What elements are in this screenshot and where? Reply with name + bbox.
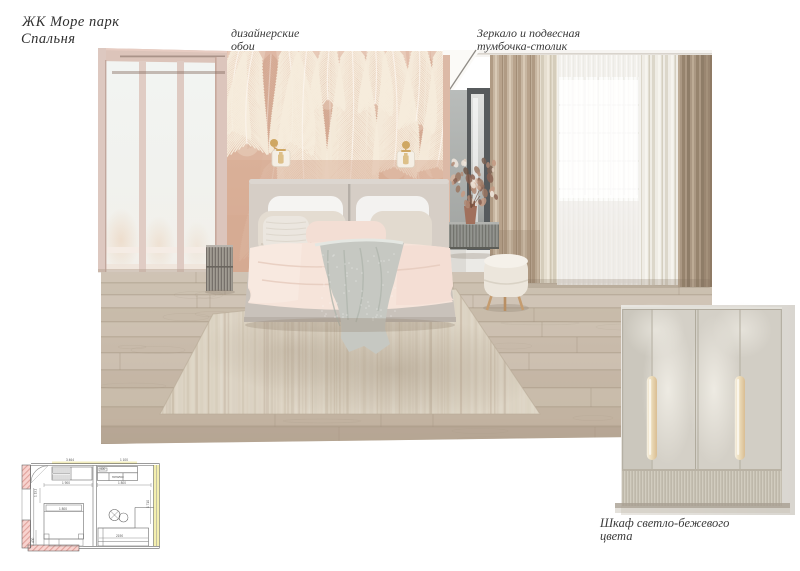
svg-text:обои: обои (231, 39, 255, 53)
svg-text:1 900: 1 900 (62, 481, 70, 485)
svg-text:400: 400 (100, 467, 106, 471)
svg-text:тумбочка-столик: тумбочка-столик (477, 39, 568, 53)
svg-text:потолок: потолок (112, 475, 124, 479)
svg-text:1 710: 1 710 (146, 500, 150, 508)
svg-text:цвета: цвета (600, 529, 633, 543)
svg-text:ЖК Море парк: ЖК Море парк (21, 14, 120, 30)
svg-text:1 800: 1 800 (59, 507, 67, 511)
svg-text:400: 400 (31, 537, 35, 543)
svg-text:1 100: 1 100 (120, 458, 128, 462)
svg-text:Зеркало и подвесная: Зеркало и подвесная (477, 26, 581, 40)
svg-text:дизайнерские: дизайнерские (231, 26, 300, 40)
svg-text:Шкаф светло-бежевого: Шкаф светло-бежевого (599, 516, 729, 530)
svg-text:3 464: 3 464 (66, 458, 74, 462)
svg-text:1 191: 1 191 (34, 489, 38, 497)
svg-text:1 800: 1 800 (118, 481, 126, 485)
svg-text:Спальня: Спальня (21, 31, 76, 47)
svg-text:2190: 2190 (116, 534, 123, 538)
